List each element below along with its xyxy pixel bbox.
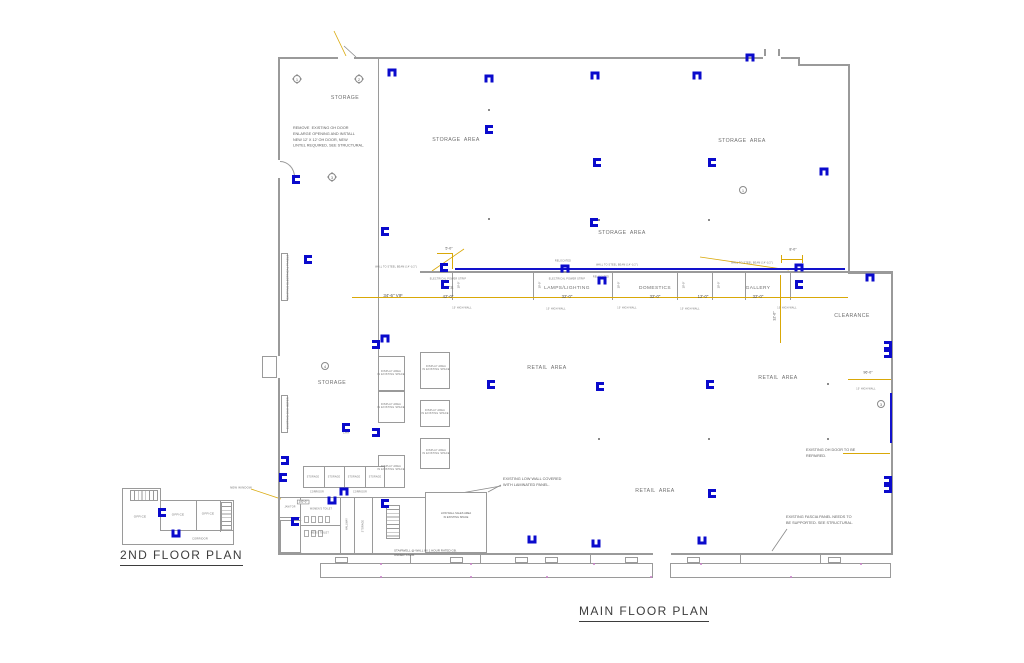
wall-light-fixture-icon [698, 537, 707, 545]
department-wall [420, 271, 893, 273]
second-floor-stair [221, 502, 232, 531]
area-label: STORAGE AREA [432, 137, 480, 143]
grid-bubble: 3 [328, 173, 336, 181]
room-label: WOMEN'S TOILET [310, 508, 332, 511]
area-label: RETAIL AREA [635, 488, 674, 494]
storefront-connector [590, 555, 591, 563]
door-recess [262, 356, 277, 378]
dimension-label: 10'-0" [617, 282, 620, 289]
dimension-tick [781, 255, 782, 263]
storefront-connector [480, 555, 481, 563]
small-annotation-label: 10' HIGH WALL [546, 308, 565, 311]
display-area-label: DISPLAY AREA IN EXISTING SPACE [422, 365, 449, 371]
interior-wall [378, 57, 379, 273]
column-marker [708, 219, 710, 221]
dimension-label: 10'-0" [682, 282, 685, 289]
small-annotation-label: ELECTRICAL POWER STRIP [549, 278, 585, 281]
room-label: OFFICE [134, 515, 146, 519]
column-marker [488, 109, 490, 111]
exterior-wall [798, 64, 850, 66]
toilet-wall [372, 497, 373, 553]
storefront-window [335, 557, 348, 563]
second-floor-stair [130, 490, 158, 501]
annotation-note: EXISTING OH DOOR TO BE REPAIRED. [806, 448, 855, 460]
small-annotation-label: WALL TO STEEL BEAM (14'-1/2") [731, 262, 773, 265]
storefront-window [515, 557, 528, 563]
department-divider [533, 273, 534, 300]
department-name: DOMESTICS [639, 285, 671, 291]
department-divider [790, 273, 791, 300]
dimension-line [437, 253, 452, 254]
display-area-label: DISPLAY AREA IN EXISTING SPACE [422, 449, 449, 455]
small-annotation-label: WALL TO STEEL BEAM (14'-1/2") [596, 264, 638, 267]
wall-light-fixture-icon [708, 489, 716, 498]
wall-light-fixture-icon [593, 158, 601, 167]
wall-light-fixture-icon [884, 484, 892, 493]
storefront-line [670, 563, 891, 564]
dimension-label: 34'-6" VIF [383, 293, 402, 298]
wall-light-fixture-icon [708, 158, 716, 167]
column-marker [598, 219, 600, 221]
column-marker [827, 383, 829, 385]
wall-light-fixture-icon [172, 530, 181, 538]
electrical-power-strip-line [455, 268, 845, 270]
toilet-fixture [311, 516, 316, 523]
department-width-dimension: 32'-0" [562, 294, 573, 299]
department-divider [712, 273, 713, 300]
storefront-cap [652, 563, 653, 578]
wall-light-fixture-icon [598, 277, 607, 285]
small-annotation-label: 10' HIGH WALL [856, 388, 875, 391]
storefront-line [320, 577, 653, 578]
column-marker [708, 438, 710, 440]
wall-light-fixture-icon [372, 428, 380, 437]
wall-light-fixture-icon [292, 175, 300, 184]
dimension-tick [802, 255, 803, 263]
wall-light-fixture-icon [487, 380, 495, 389]
low-wall-sales-box [425, 492, 487, 553]
dimension-label: 8'-0" [789, 248, 796, 252]
dimension-line [352, 297, 848, 298]
wall-light-fixture-icon [561, 265, 570, 273]
small-annotation-label: 10' HIGH WALL [777, 307, 796, 310]
storefront-cap [670, 563, 671, 578]
small-annotation-label: RELOCATED [555, 260, 571, 263]
column-marker [827, 438, 829, 440]
room-label: CORRIDOR [353, 491, 367, 494]
wall-light-fixture-icon [528, 536, 537, 544]
vertical-utility-label: EXISTING ELECTRICAL PANELS [286, 254, 289, 299]
room-divider [324, 466, 325, 488]
wall-light-fixture-icon [592, 540, 601, 548]
toilet-wall [354, 497, 355, 553]
display-area-label: DISPLAY AREA IN EXISTING SPACE [377, 370, 404, 376]
dimension-line [781, 259, 803, 260]
area-label: RETAIL AREA [758, 375, 797, 381]
annotation-note: STAIRWELL @ WALL W/ 1 HOUR RATED GB. UND… [394, 549, 457, 558]
room-label: CORRIDOR [310, 491, 324, 494]
wall-light-fixture-icon [381, 335, 390, 343]
wall-light-fixture-icon [381, 227, 389, 236]
door-tick [764, 49, 766, 56]
wall-light-fixture-icon [291, 517, 299, 526]
second-floor-wall [122, 488, 160, 489]
display-area-label: DISPLAY AREA IN EXISTING SPACE [377, 403, 404, 409]
room-label: HALLWAY [346, 518, 349, 530]
vertical-utility-label: EXISTING GAS METER [286, 397, 289, 429]
dimension-label: 32'-0" [773, 311, 777, 320]
floor-plan-sheet: 2ND FLOOR PLAN MAIN FLOOR PLAN STORAGEST… [0, 0, 1024, 663]
display-area-label: DISPLAY AREA IN EXISTING SPACE [377, 465, 404, 471]
department-width-dimension: 42'-0" [443, 294, 454, 299]
second-floor-plan-title: 2ND FLOOR PLAN [120, 548, 243, 566]
wall-light-fixture-icon [884, 349, 892, 358]
department-width-dimension: 32'-0" [650, 294, 661, 299]
exterior-wall-bottom [278, 553, 892, 555]
grid-bubble: 1 [293, 75, 301, 83]
small-annotation-label: 10' HIGH WALL [617, 307, 636, 310]
area-label: RETAIL AREA [527, 365, 566, 371]
storefront-line [670, 577, 891, 578]
wall-light-fixture-icon [279, 473, 287, 482]
room-divider [344, 466, 345, 488]
dimension-label: 10'-0" [717, 282, 720, 289]
room-label: STORAGE [362, 520, 365, 532]
annotation-note: EXISTING FASCIA PANEL NEEDS TO BE SUPPOR… [786, 515, 853, 527]
room-label: STORAGE [348, 476, 360, 479]
room-label: STORAGE [369, 476, 381, 479]
wall-light-fixture-icon [281, 456, 289, 465]
wall-light-fixture-icon [596, 382, 604, 391]
entrance-opening [653, 553, 671, 557]
wall-light-fixture-icon [706, 380, 714, 389]
annotation-note: REMOVE EXISTING OH DOOR ENLARGE OPENING … [293, 126, 364, 150]
room-label: STORAGE [328, 476, 340, 479]
door-opening [763, 56, 781, 60]
department-name: GALLERY [746, 285, 771, 291]
toilet-wall [340, 497, 341, 553]
wall-light-fixture-icon [795, 280, 803, 289]
toilet-fixture [325, 516, 330, 523]
wall-light-fixture-icon [342, 423, 350, 432]
electrical-strip-line [890, 393, 892, 443]
department-width-dimension: 32'-0" [753, 294, 764, 299]
wall-light-fixture-icon [820, 168, 829, 176]
storefront-window [545, 557, 558, 563]
second-floor-wall [122, 544, 234, 545]
column-marker [488, 218, 490, 220]
storefront-window [828, 557, 841, 563]
wall-light-fixture-icon [304, 255, 312, 264]
storefront-cap [890, 563, 891, 578]
storefront-cap [320, 563, 321, 578]
storefront-connector [820, 555, 821, 563]
area-label: STORAGE [331, 95, 359, 101]
area-label: STORAGE AREA [718, 138, 766, 144]
main-floor-plan-title: MAIN FLOOR PLAN [579, 604, 709, 622]
department-divider [612, 273, 613, 300]
wall-light-fixture-icon [158, 508, 166, 517]
second-floor-wall [122, 488, 123, 545]
stair [386, 505, 400, 539]
dimension-label: 5'-0" [445, 247, 452, 251]
wall-light-fixture-icon [440, 263, 448, 272]
wall-light-fixture-icon [591, 72, 600, 80]
grid-bubble: 3 [877, 400, 885, 408]
dimension-label: 100'-0" [297, 500, 309, 504]
storefront-window [625, 557, 638, 563]
exterior-wall-right-upper [848, 64, 850, 274]
department-divider [677, 273, 678, 300]
storefront-line [320, 563, 653, 564]
door-opening [338, 56, 354, 60]
toilet-fixture [304, 530, 309, 537]
column-marker [598, 438, 600, 440]
room-label: JANITOR [284, 506, 295, 509]
wall-light-fixture-icon [340, 488, 349, 496]
room-label: OFFICE [202, 512, 214, 516]
room-label: CORRIDOR [192, 537, 208, 540]
department-name: LAMPS/LIGHTING [544, 285, 590, 291]
dimension-label: 10'-0" [538, 282, 541, 289]
small-annotation-label: 10' HIGH WALL [680, 308, 699, 311]
annotation-note: EXISTING LOW WALL COVERED WITH LAMINATED… [503, 477, 561, 489]
room-label: OFFICE [172, 513, 184, 517]
toilet-wall [300, 525, 340, 526]
grid-bubble: 1 [739, 186, 747, 194]
wall-light-fixture-icon [590, 218, 598, 227]
display-area-label: DISPLAY AREA IN EXISTING SPACE [421, 409, 448, 415]
dimension-label: 96'-0" [863, 371, 872, 375]
small-annotation-label: NEW WINDOW [230, 486, 252, 489]
small-annotation-label: 10' HIGH WALL [452, 307, 471, 310]
wall-light-fixture-icon [485, 75, 494, 83]
dimension-label: 10'-0" [457, 282, 460, 289]
wall-light-fixture-icon [746, 54, 755, 62]
wall-light-fixture-icon [485, 125, 493, 134]
wall-light-fixture-icon [866, 274, 875, 282]
dimension-line [848, 379, 891, 380]
exterior-wall-top [278, 57, 800, 59]
room-label: MEN'S TOILET [311, 532, 329, 535]
department-width-dimension: 12'-0" [698, 294, 709, 299]
area-label: CLEARANCE [834, 313, 870, 319]
second-floor-wall [233, 500, 234, 545]
area-label: STORAGE [318, 380, 346, 386]
wall-light-fixture-icon [381, 499, 389, 508]
yellow-leader-lines [251, 31, 789, 499]
area-label: STORAGE AREA [598, 230, 646, 236]
room-label: STORAGE [307, 476, 319, 479]
small-annotation-label: WALL TO STEEL BEAM (14'-1/2") [375, 266, 417, 269]
second-floor-wall [196, 500, 197, 530]
storefront-connector [740, 555, 741, 563]
wall-light-fixture-icon [795, 264, 804, 272]
toilet-fixture [304, 516, 309, 523]
dimension-line [452, 253, 453, 269]
annotation-note: LOW WALL SALES AREA IN EXISTING SPACE [441, 512, 471, 520]
storefront-window [687, 557, 700, 563]
wall-light-fixture-icon [441, 280, 449, 289]
grid-bubble: 2 [355, 75, 363, 83]
wall-light-fixture-icon [372, 340, 380, 349]
wall-light-fixture-icon [388, 69, 397, 77]
storefront-window [450, 557, 463, 563]
door-tick [778, 49, 780, 56]
grid-bubble: 4 [321, 362, 329, 370]
room-divider [365, 466, 366, 488]
wall-light-fixture-icon [693, 72, 702, 80]
wall-light-fixture-icon [328, 497, 337, 505]
toilet-fixture [318, 516, 323, 523]
